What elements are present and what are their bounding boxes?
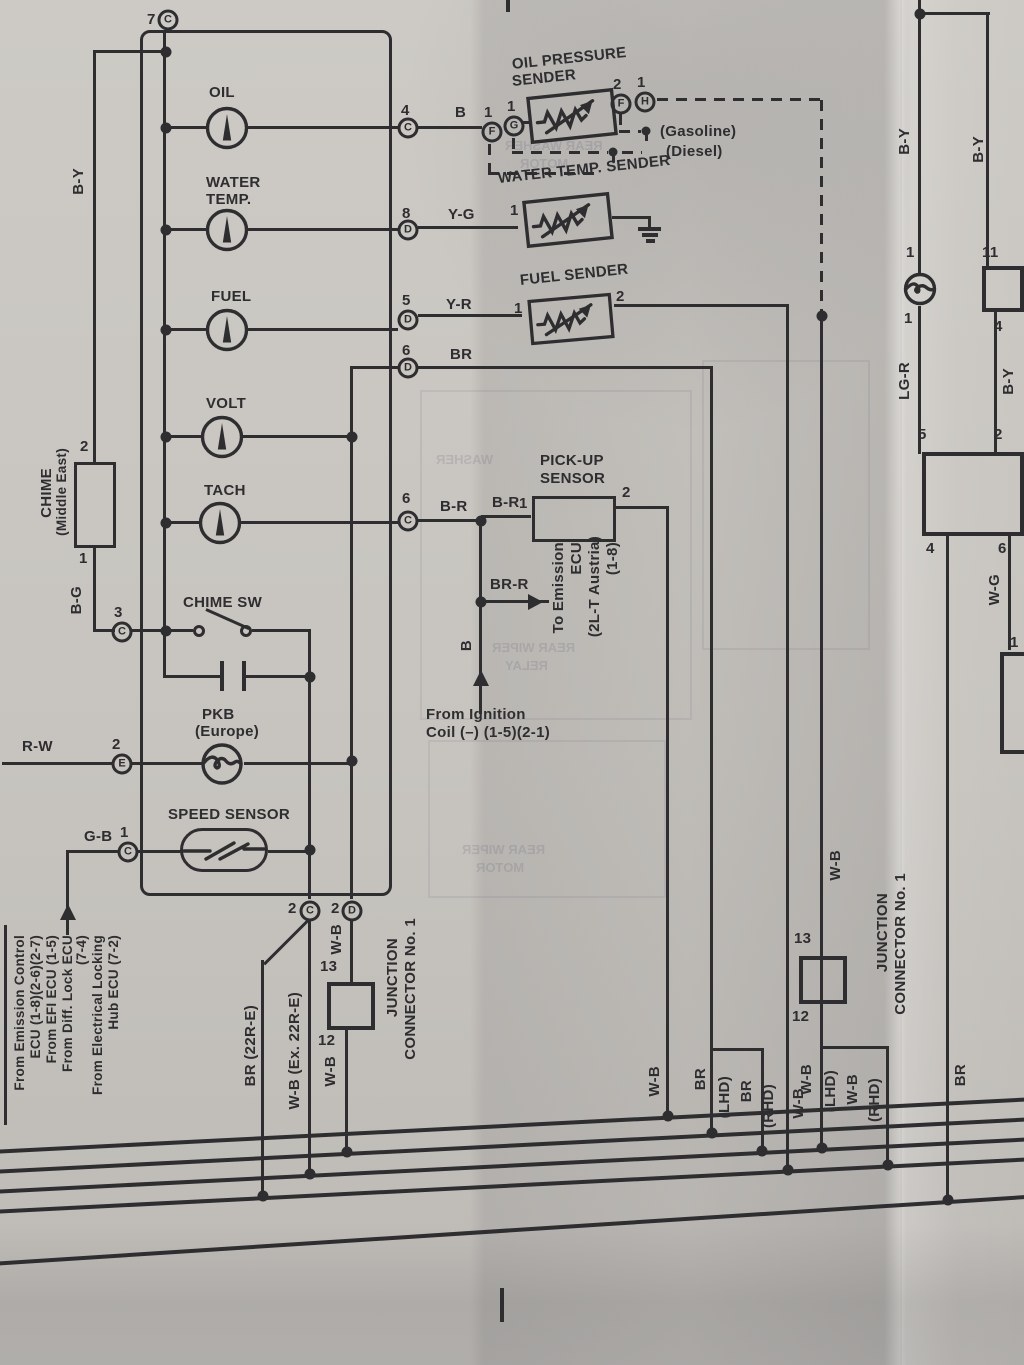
pin-number: 1: [1010, 634, 1019, 651]
wire-label-bg: B-G: [68, 586, 85, 614]
from-ecu-text: From Emission Control: [12, 935, 27, 1091]
diesel-label: (Diesel): [666, 143, 723, 160]
wire: [481, 515, 531, 518]
wire-label-wbex: W-B (Ex. 22R-E): [286, 992, 303, 1110]
pin-number: 2: [616, 288, 625, 305]
wire-label-rhd: (RHD): [866, 1078, 883, 1122]
pin-number: 4: [926, 540, 935, 557]
fuel-gauge-label: FUEL: [211, 288, 251, 305]
pin-number: 13: [320, 958, 337, 975]
pin-number: 2: [613, 76, 622, 93]
wire-label-wb: W-B: [646, 1066, 663, 1097]
combination-meter-box: [140, 30, 392, 896]
junction-dot: [305, 672, 316, 683]
wire-label-yg: Y-G: [448, 206, 475, 223]
pkb-label: PKB: [202, 706, 235, 723]
pin-number: 4: [401, 102, 410, 119]
junction-connector-label2: CONNECTOR No. 1: [402, 918, 419, 1060]
chime-box: [74, 462, 116, 548]
connector-c6: C: [398, 511, 419, 532]
connector-d6: D: [398, 358, 419, 379]
wire: [418, 126, 482, 129]
pin-number: 1: [507, 98, 516, 115]
pin-number: 2: [112, 736, 121, 753]
to-emission-text: ECU: [568, 542, 585, 575]
connector-d8: D: [398, 220, 419, 241]
contact-bar-icon: [220, 661, 224, 691]
water-gauge-label2: TEMP.: [206, 191, 251, 208]
reed-switch-icon: [180, 828, 268, 872]
shadow-bottom: [0, 1225, 1024, 1365]
pickup-sensor-label2: SENSOR: [540, 470, 605, 487]
wire-label-br1: B-R: [440, 498, 468, 515]
wire-label-lhd: (LHD): [822, 1070, 839, 1112]
wire-label-br: BR: [738, 1080, 755, 1102]
fuel-sender-resistor: [526, 292, 616, 345]
wire: [244, 762, 354, 765]
pin-number: 12: [792, 1008, 809, 1025]
connector-d5: D: [398, 310, 419, 331]
connector-c7: C: [158, 10, 179, 31]
pin-number: 6: [402, 490, 411, 507]
dashed-wire: [622, 151, 642, 154]
wire: [612, 216, 650, 219]
junction-dot: [161, 225, 172, 236]
wire-label-br: BR: [692, 1068, 709, 1090]
fold-tick-bottom: [500, 1288, 504, 1322]
wire-label-wb: W-B: [328, 924, 345, 955]
wire-label-rw: R-W: [22, 738, 53, 755]
dashed-wire: [488, 144, 491, 174]
wire: [261, 960, 264, 1198]
wire: [418, 366, 712, 369]
wire-label-by: B-Y: [970, 136, 987, 163]
wire-label-br: BR: [450, 346, 472, 363]
wire: [241, 521, 398, 524]
wire: [350, 366, 353, 899]
pin-number: 1: [637, 74, 646, 91]
wire-label-b: B: [455, 104, 466, 121]
fold-tick-top: [506, 0, 510, 12]
from-ignition-text2: Coil (–) (1-5)(2-1): [426, 724, 550, 741]
right-small-box-bottom: [1000, 652, 1024, 754]
pin-number: 2: [622, 484, 631, 501]
panel-border: [4, 925, 7, 1125]
wire: [248, 328, 398, 331]
wire-label-by: B-Y: [1000, 368, 1017, 395]
wire: [418, 226, 518, 229]
wire: [710, 1048, 764, 1051]
tach-gauge-label: TACH: [204, 482, 246, 499]
wire: [2, 762, 114, 765]
from-ecu-text: (7-4): [74, 935, 89, 965]
junction-connector-box: [327, 982, 375, 1030]
volt-gauge-label: VOLT: [206, 395, 246, 412]
tach-gauge-icon: [197, 500, 243, 546]
wire: [68, 850, 120, 853]
oil-gauge-label: OIL: [209, 84, 235, 101]
pin-number: 12: [318, 1032, 335, 1049]
wire-label-gb: G-B: [84, 828, 112, 845]
arrow-up-icon: [60, 904, 76, 920]
wire-label-brr: BR-R: [490, 576, 529, 593]
ghost-grid: [428, 740, 666, 898]
pin-number: 6: [998, 540, 1007, 557]
pin-number: 1: [79, 550, 88, 567]
wire: [163, 675, 220, 678]
water-temp-gauge-icon: [204, 207, 250, 253]
pin-number: 3: [114, 604, 123, 621]
junction-dot: [305, 845, 316, 856]
wire: [710, 366, 713, 1135]
pin-number: 2: [994, 426, 1003, 443]
wire-label-wb: W-B: [844, 1074, 861, 1105]
wire-label-br2: B-R: [492, 494, 520, 511]
wire-label-br: BR: [952, 1064, 969, 1086]
pin-number: 13: [794, 930, 811, 947]
arrow-up-icon: [473, 670, 489, 686]
wire: [248, 126, 398, 129]
junction-connector-label: JUNCTION: [874, 893, 891, 972]
from-ecu-text: From Diff. Lock ECU: [60, 935, 75, 1072]
wire-label-rhd: (RHD): [760, 1084, 777, 1128]
wire-label-by: B-Y: [70, 168, 87, 195]
to-emission-text: To Emission: [550, 542, 567, 633]
wire: [820, 316, 823, 958]
junction-connector-label: JUNCTION: [384, 938, 401, 1017]
oil-gauge-icon: [204, 105, 250, 151]
dashed-wire: [512, 151, 608, 154]
from-ecu-text: ECU (1-8)(2-6)(2-7): [28, 935, 43, 1058]
wire: [918, 12, 990, 15]
pin-number: 2: [288, 900, 297, 917]
to-emission-text: (2L-T Austria): [586, 536, 603, 637]
pin-number: 2: [80, 438, 89, 455]
pin-number: 7: [147, 11, 156, 28]
ground-icon: [638, 227, 661, 231]
connector-g1: G: [504, 116, 525, 137]
pin-number: 5: [402, 292, 411, 309]
wire: [616, 506, 668, 509]
pin-number: 1: [904, 310, 913, 327]
speed-sensor-label: SPEED SENSOR: [168, 806, 290, 823]
bulb-icon: [903, 272, 937, 306]
wire: [138, 850, 182, 853]
wire: [243, 435, 352, 438]
pin-number: 1: [906, 244, 915, 261]
connector-f1: F: [482, 122, 503, 143]
wire: [66, 850, 69, 935]
pin-number: 1: [514, 300, 523, 317]
wire: [666, 506, 669, 1117]
wire-label-by: B-Y: [896, 128, 913, 155]
from-ecu-text: From EFI ECU (1-5): [44, 935, 59, 1063]
wire-label-wb: W-B: [827, 850, 844, 881]
wire: [820, 1046, 888, 1049]
wire: [614, 304, 788, 307]
ground-icon: [646, 239, 655, 243]
water-gauge-label: WATER: [206, 174, 261, 191]
wiring-diagram-page: REAR WASHER MOTOR WASHER REAR WIPER RELA…: [0, 0, 1024, 1365]
junction-dot: [161, 123, 172, 134]
chime-label: CHIME: [38, 468, 55, 518]
junction-connector-box: [799, 956, 847, 1004]
wire: [93, 548, 96, 632]
switch-contact-icon: [193, 625, 205, 637]
wire: [918, 0, 921, 274]
pkb-bulb-icon: [200, 742, 244, 786]
pin-number: 1: [519, 495, 528, 512]
wire: [263, 919, 309, 965]
wire: [418, 519, 480, 522]
wire: [786, 304, 789, 1171]
from-ecu-text: From Electrical Locking: [90, 935, 105, 1095]
pin-number: 2: [331, 900, 340, 917]
wire-label-wg: W-G: [986, 574, 1003, 605]
switch-contact-icon: [240, 625, 252, 637]
junction-dot: [347, 432, 358, 443]
pickup-sensor-label: PICK-UP: [540, 452, 604, 469]
junction-dot: [161, 518, 172, 529]
wire: [95, 50, 167, 53]
pin-number: 1: [510, 202, 519, 219]
junction-dot: [347, 756, 358, 767]
junction-dot: [161, 47, 172, 58]
wire: [132, 762, 202, 765]
wire: [350, 919, 353, 985]
chime-sw-label: CHIME SW: [183, 594, 262, 611]
pin-number: 6: [402, 342, 411, 359]
from-ecu-text: Hub ECU (7-2): [106, 935, 121, 1030]
pin-number: 1: [120, 824, 129, 841]
contact-bar-icon: [242, 661, 246, 691]
wire: [418, 314, 522, 317]
arrow-right-icon: [528, 594, 543, 610]
water-sender-resistor: [522, 192, 615, 249]
wire: [93, 50, 96, 462]
wire: [645, 133, 648, 141]
connector-f2: F: [611, 94, 632, 115]
connector-h1: H: [635, 92, 656, 113]
wire-label-lgr: LG-R: [896, 362, 913, 400]
dashed-wire: [820, 100, 823, 314]
junction-connector-label2: CONNECTOR No. 1: [892, 873, 909, 1015]
connector-c1: C: [118, 842, 139, 863]
fuel-gauge-icon: [204, 307, 250, 353]
wire: [165, 629, 193, 632]
wire-label-wb: W-B: [322, 1056, 339, 1087]
wire: [163, 631, 166, 678]
to-emission-text: (1-8): [604, 542, 621, 575]
pin-number: 1: [484, 104, 493, 121]
pickup-sensor-box: [532, 496, 616, 542]
wire: [246, 675, 310, 678]
wire: [1008, 536, 1011, 650]
dashed-wire: [619, 130, 641, 133]
wire-label-br22: BR (22R-E): [242, 1005, 259, 1086]
pin-number: 11: [982, 244, 998, 261]
junction-dot: [161, 432, 172, 443]
wire-label-yr: Y-R: [446, 296, 472, 313]
pin-number: 5: [918, 426, 927, 443]
wire: [352, 366, 398, 369]
oil-sender-resistor: [526, 88, 619, 145]
chime-label2: (Middle East): [54, 448, 69, 536]
right-big-box: [922, 452, 1024, 536]
wire: [820, 956, 823, 1008]
connector-c3: C: [112, 622, 133, 643]
ground-icon: [642, 233, 658, 237]
dashed-wire: [657, 98, 822, 101]
volt-gauge-icon: [199, 414, 245, 460]
connector-c4: C: [398, 118, 419, 139]
from-ignition-text: From Ignition: [426, 706, 526, 723]
gasoline-label: (Gasoline): [660, 123, 736, 140]
wire: [248, 228, 398, 231]
pkb-label2: (Europe): [195, 723, 259, 740]
connector-e2: E: [112, 754, 133, 775]
wire-label-b: B: [458, 640, 475, 651]
junction-dot: [161, 325, 172, 336]
wire: [252, 629, 310, 632]
right-small-box-top: [982, 266, 1024, 312]
wire-label-wb: W-B: [798, 1064, 815, 1095]
